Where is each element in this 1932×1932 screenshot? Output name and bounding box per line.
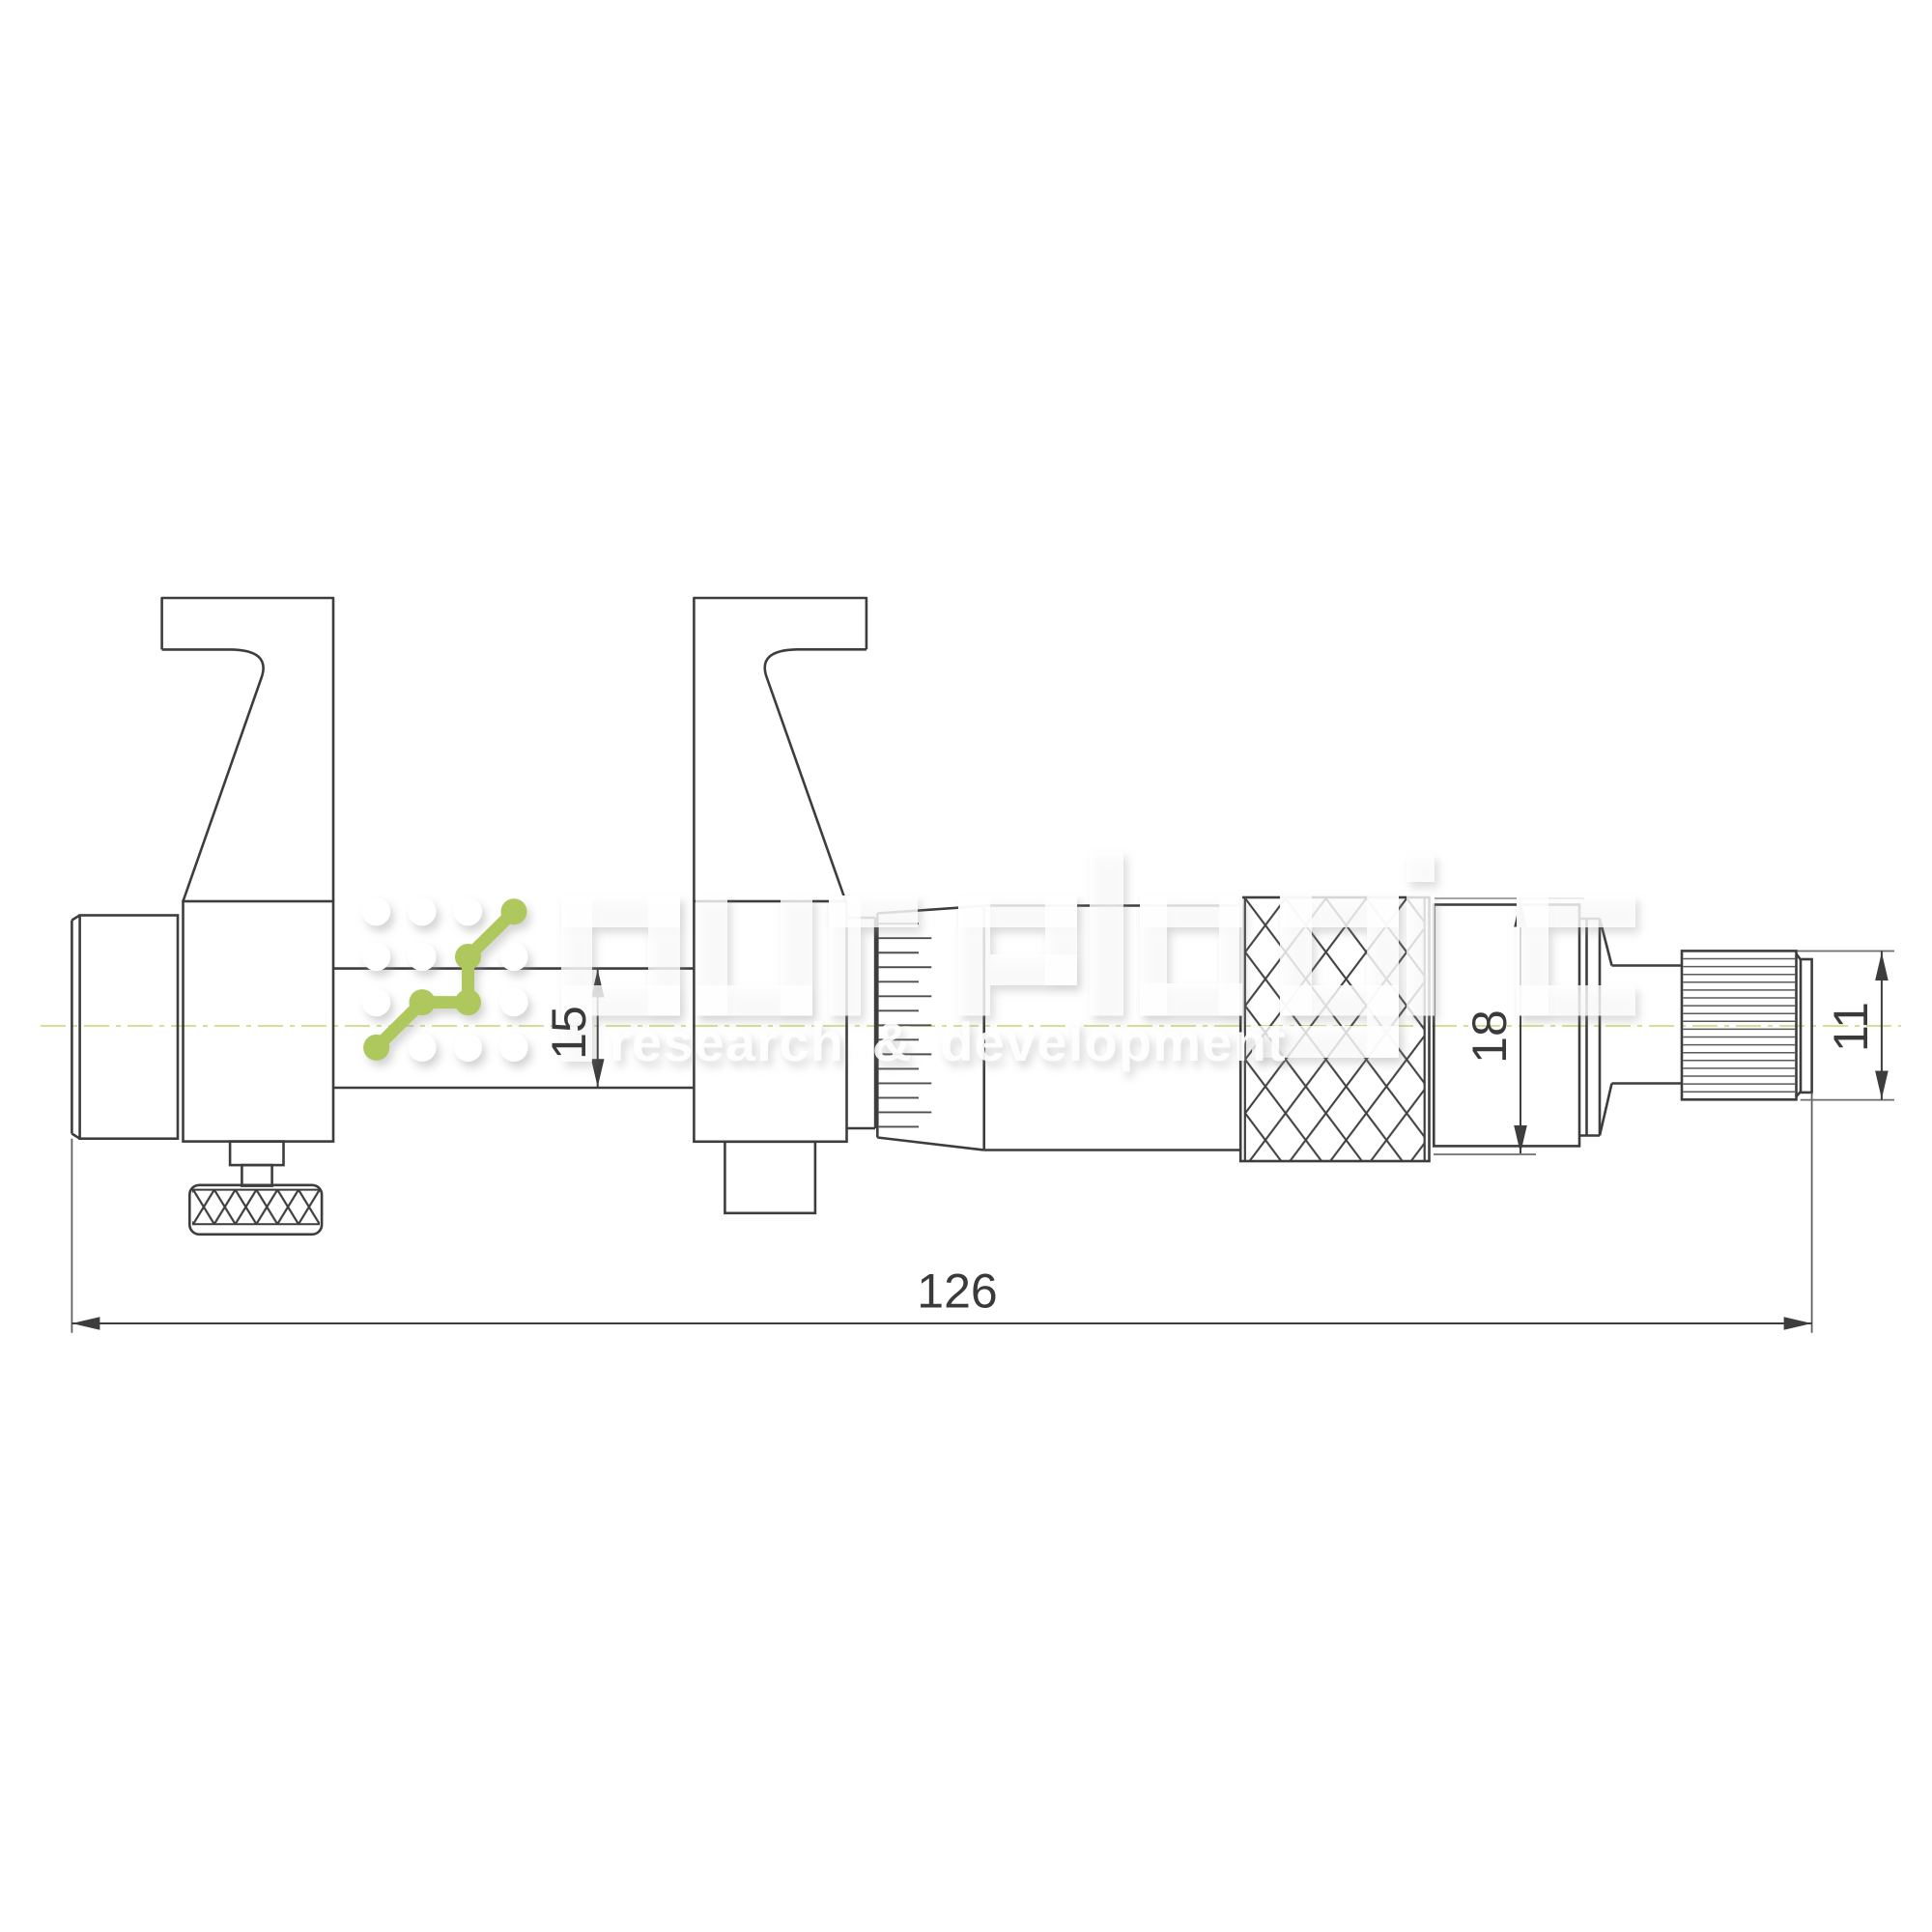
svg-text:11: 11 (1824, 1002, 1878, 1052)
svg-text:research & development: research & development (610, 1011, 1287, 1072)
svg-text:18: 18 (1463, 1009, 1517, 1064)
svg-text:15: 15 (542, 1006, 596, 1060)
svg-text:126: 126 (917, 1264, 997, 1319)
